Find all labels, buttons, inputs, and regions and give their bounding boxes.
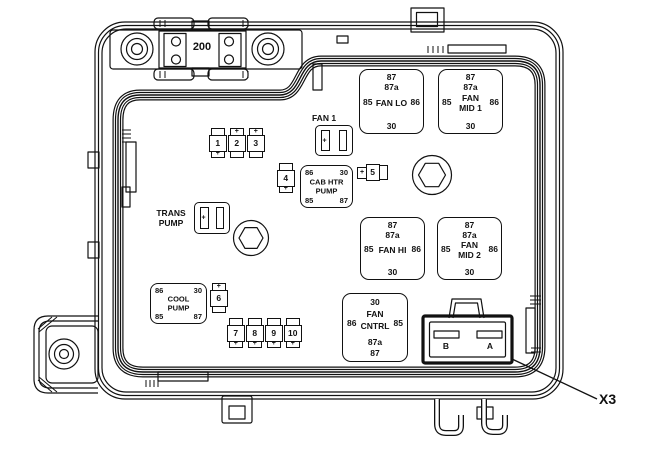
connector-slot-b xyxy=(434,331,459,338)
pin-87: 87 xyxy=(439,72,502,82)
fuse-cap xyxy=(378,165,388,180)
pin-30: 30 xyxy=(343,297,407,307)
trans-pump-fuse-holder: + xyxy=(194,202,230,234)
mount-bracket xyxy=(34,316,98,393)
pin-85: 85 xyxy=(394,318,403,328)
fuse-10: 10 + xyxy=(284,318,302,348)
pin-87: 87 xyxy=(194,312,202,321)
fuse-number: 7 xyxy=(227,325,245,342)
bottom-hooks xyxy=(437,399,505,433)
fuse-number: 2 xyxy=(228,135,246,152)
holder-slot xyxy=(339,130,348,151)
fuse-number: 4 xyxy=(277,170,295,187)
fuse-number: 8 xyxy=(246,325,264,342)
fuse-5: + 5 xyxy=(357,164,388,181)
callout-leader-line xyxy=(512,359,597,399)
fuse-number: 10 xyxy=(284,325,302,342)
relay-name: FAN HI xyxy=(372,245,413,255)
pin-87: 87 xyxy=(360,72,423,82)
connector-x3-body xyxy=(423,299,512,363)
fuse-4: 4 + xyxy=(277,163,295,193)
enclosure-line-art xyxy=(0,0,650,450)
relay-name: COOL PUMP xyxy=(151,294,206,313)
trans-pump-label: TRANS PUMP xyxy=(151,208,191,228)
fuse-7: 7 + xyxy=(227,318,245,348)
connector-x3-callout: X3 xyxy=(599,391,616,407)
fuse-6: + 6 xyxy=(210,283,228,313)
pin-85: 85 xyxy=(305,196,313,205)
relay-cab-htr-pump: 86 30 CAB HTR PUMP 85 87 xyxy=(300,165,353,208)
pin-86: 86 xyxy=(411,97,420,107)
connector-slot-b-label: B xyxy=(438,341,454,351)
pin-87a: 87a xyxy=(343,337,407,347)
pin-87a: 87a xyxy=(438,230,501,240)
pin-87: 87 xyxy=(343,348,407,358)
polarity-plus: + xyxy=(202,215,206,222)
relay-fan-lo: 87 87a 85 FAN LO 86 30 xyxy=(359,69,424,134)
relay-name: FAN LO xyxy=(371,98,412,108)
pin-30: 30 xyxy=(340,168,348,177)
fuse-3: + 3 xyxy=(247,128,265,158)
pin-30: 30 xyxy=(439,121,502,131)
fuse-2: + 2 xyxy=(228,128,246,158)
pin-87a: 87a xyxy=(361,230,424,240)
fan1-fuse-holder: + xyxy=(315,125,353,156)
polarity-plus: + xyxy=(323,137,327,144)
fuse-number: 6 xyxy=(210,290,228,307)
hex-bolt-lower xyxy=(234,221,269,256)
relay-fan-mid-2: 87 87a 85 FAN MID 2 86 30 xyxy=(437,217,502,280)
relay-name: FAN MID 1 xyxy=(450,93,491,113)
pin-87: 87 xyxy=(340,196,348,205)
relay-cool-pump: 86 30 COOL PUMP 85 87 xyxy=(150,283,207,324)
bottom-latch-tab xyxy=(222,396,252,423)
pin-86: 86 xyxy=(412,244,421,254)
relay-name: FAN MID 2 xyxy=(449,240,490,260)
pin-87: 87 xyxy=(438,220,501,230)
pin-85: 85 xyxy=(155,312,163,321)
relay-name: CAB HTR PUMP xyxy=(301,177,352,196)
pin-30: 30 xyxy=(438,267,501,277)
pin-86: 86 xyxy=(489,244,498,254)
bolt-hole xyxy=(49,339,79,369)
fuse-number: 3 xyxy=(247,135,265,152)
fuse-9: 9 + xyxy=(265,318,283,348)
pin-30: 30 xyxy=(360,121,423,131)
connector-slot-a xyxy=(477,331,502,338)
fuse-1: 1 + xyxy=(209,128,227,158)
mega-fuse-label: 200 xyxy=(186,41,218,53)
fuse-number: 9 xyxy=(265,325,283,342)
pin-87: 87 xyxy=(361,220,424,230)
pin-86: 86 xyxy=(490,97,499,107)
stud-terminal-right xyxy=(252,33,284,65)
fuse-number: 5 xyxy=(366,164,380,181)
underhood-fuse-box-diagram: 200 FAN 1 + TRANS PUMP + 87 87a 85 FAN L… xyxy=(0,0,650,450)
holder-slot xyxy=(216,207,225,229)
relay-fan-hi: 87 87a 85 FAN HI 86 30 xyxy=(360,217,425,280)
fuse-number: 1 xyxy=(209,135,227,152)
pin-86: 86 xyxy=(305,168,313,177)
pin-87a: 87a xyxy=(360,82,423,92)
fuse-8: 8 + xyxy=(246,318,264,348)
pin-30: 30 xyxy=(361,267,424,277)
stud-terminal-left xyxy=(121,33,153,65)
connector-slot-a-label: A xyxy=(482,341,498,351)
pin-87a: 87a xyxy=(439,82,502,92)
fan1-label: FAN 1 xyxy=(294,113,354,123)
hex-bolt-upper xyxy=(413,156,452,195)
relay-fan-cntrl: 30 86 FAN CNTRL 85 87a 87 xyxy=(342,293,408,362)
relay-fan-mid-1: 87 87a 85 FAN MID 1 86 30 xyxy=(438,69,503,134)
